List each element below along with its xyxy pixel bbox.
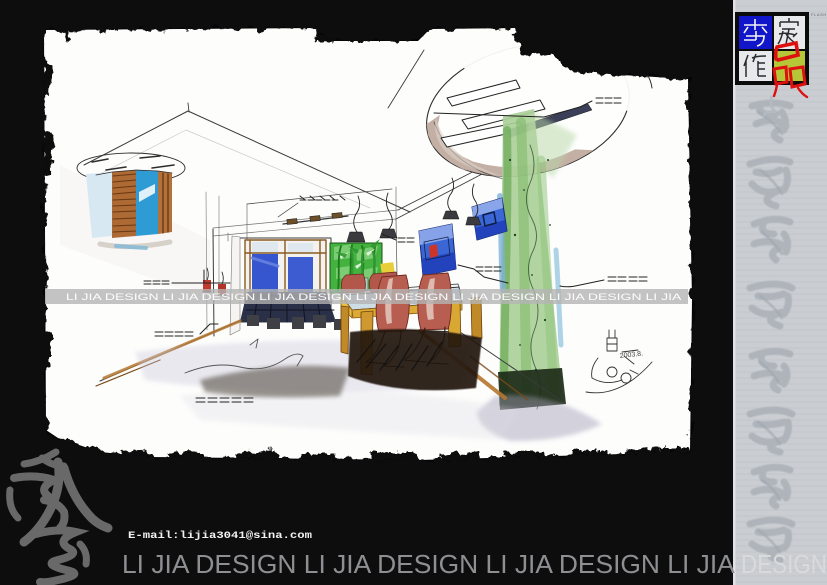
svg-text:FLASH: FLASH	[811, 12, 827, 17]
svg-text:E-mail:lijia3041@sina.com: E-mail:lijia3041@sina.com	[128, 530, 312, 542]
svg-text:DESIGN: DESIGN	[741, 550, 827, 578]
svg-text:LI JIA DESIGN LI JIA DESIGN LI: LI JIA DESIGN LI JIA DESIGN LI JIA DESIG…	[66, 291, 682, 302]
svg-text:LI JIA DESIGN LI JIA DESIGN LI: LI JIA DESIGN LI JIA DESIGN LI JIA DESIG…	[122, 550, 735, 578]
